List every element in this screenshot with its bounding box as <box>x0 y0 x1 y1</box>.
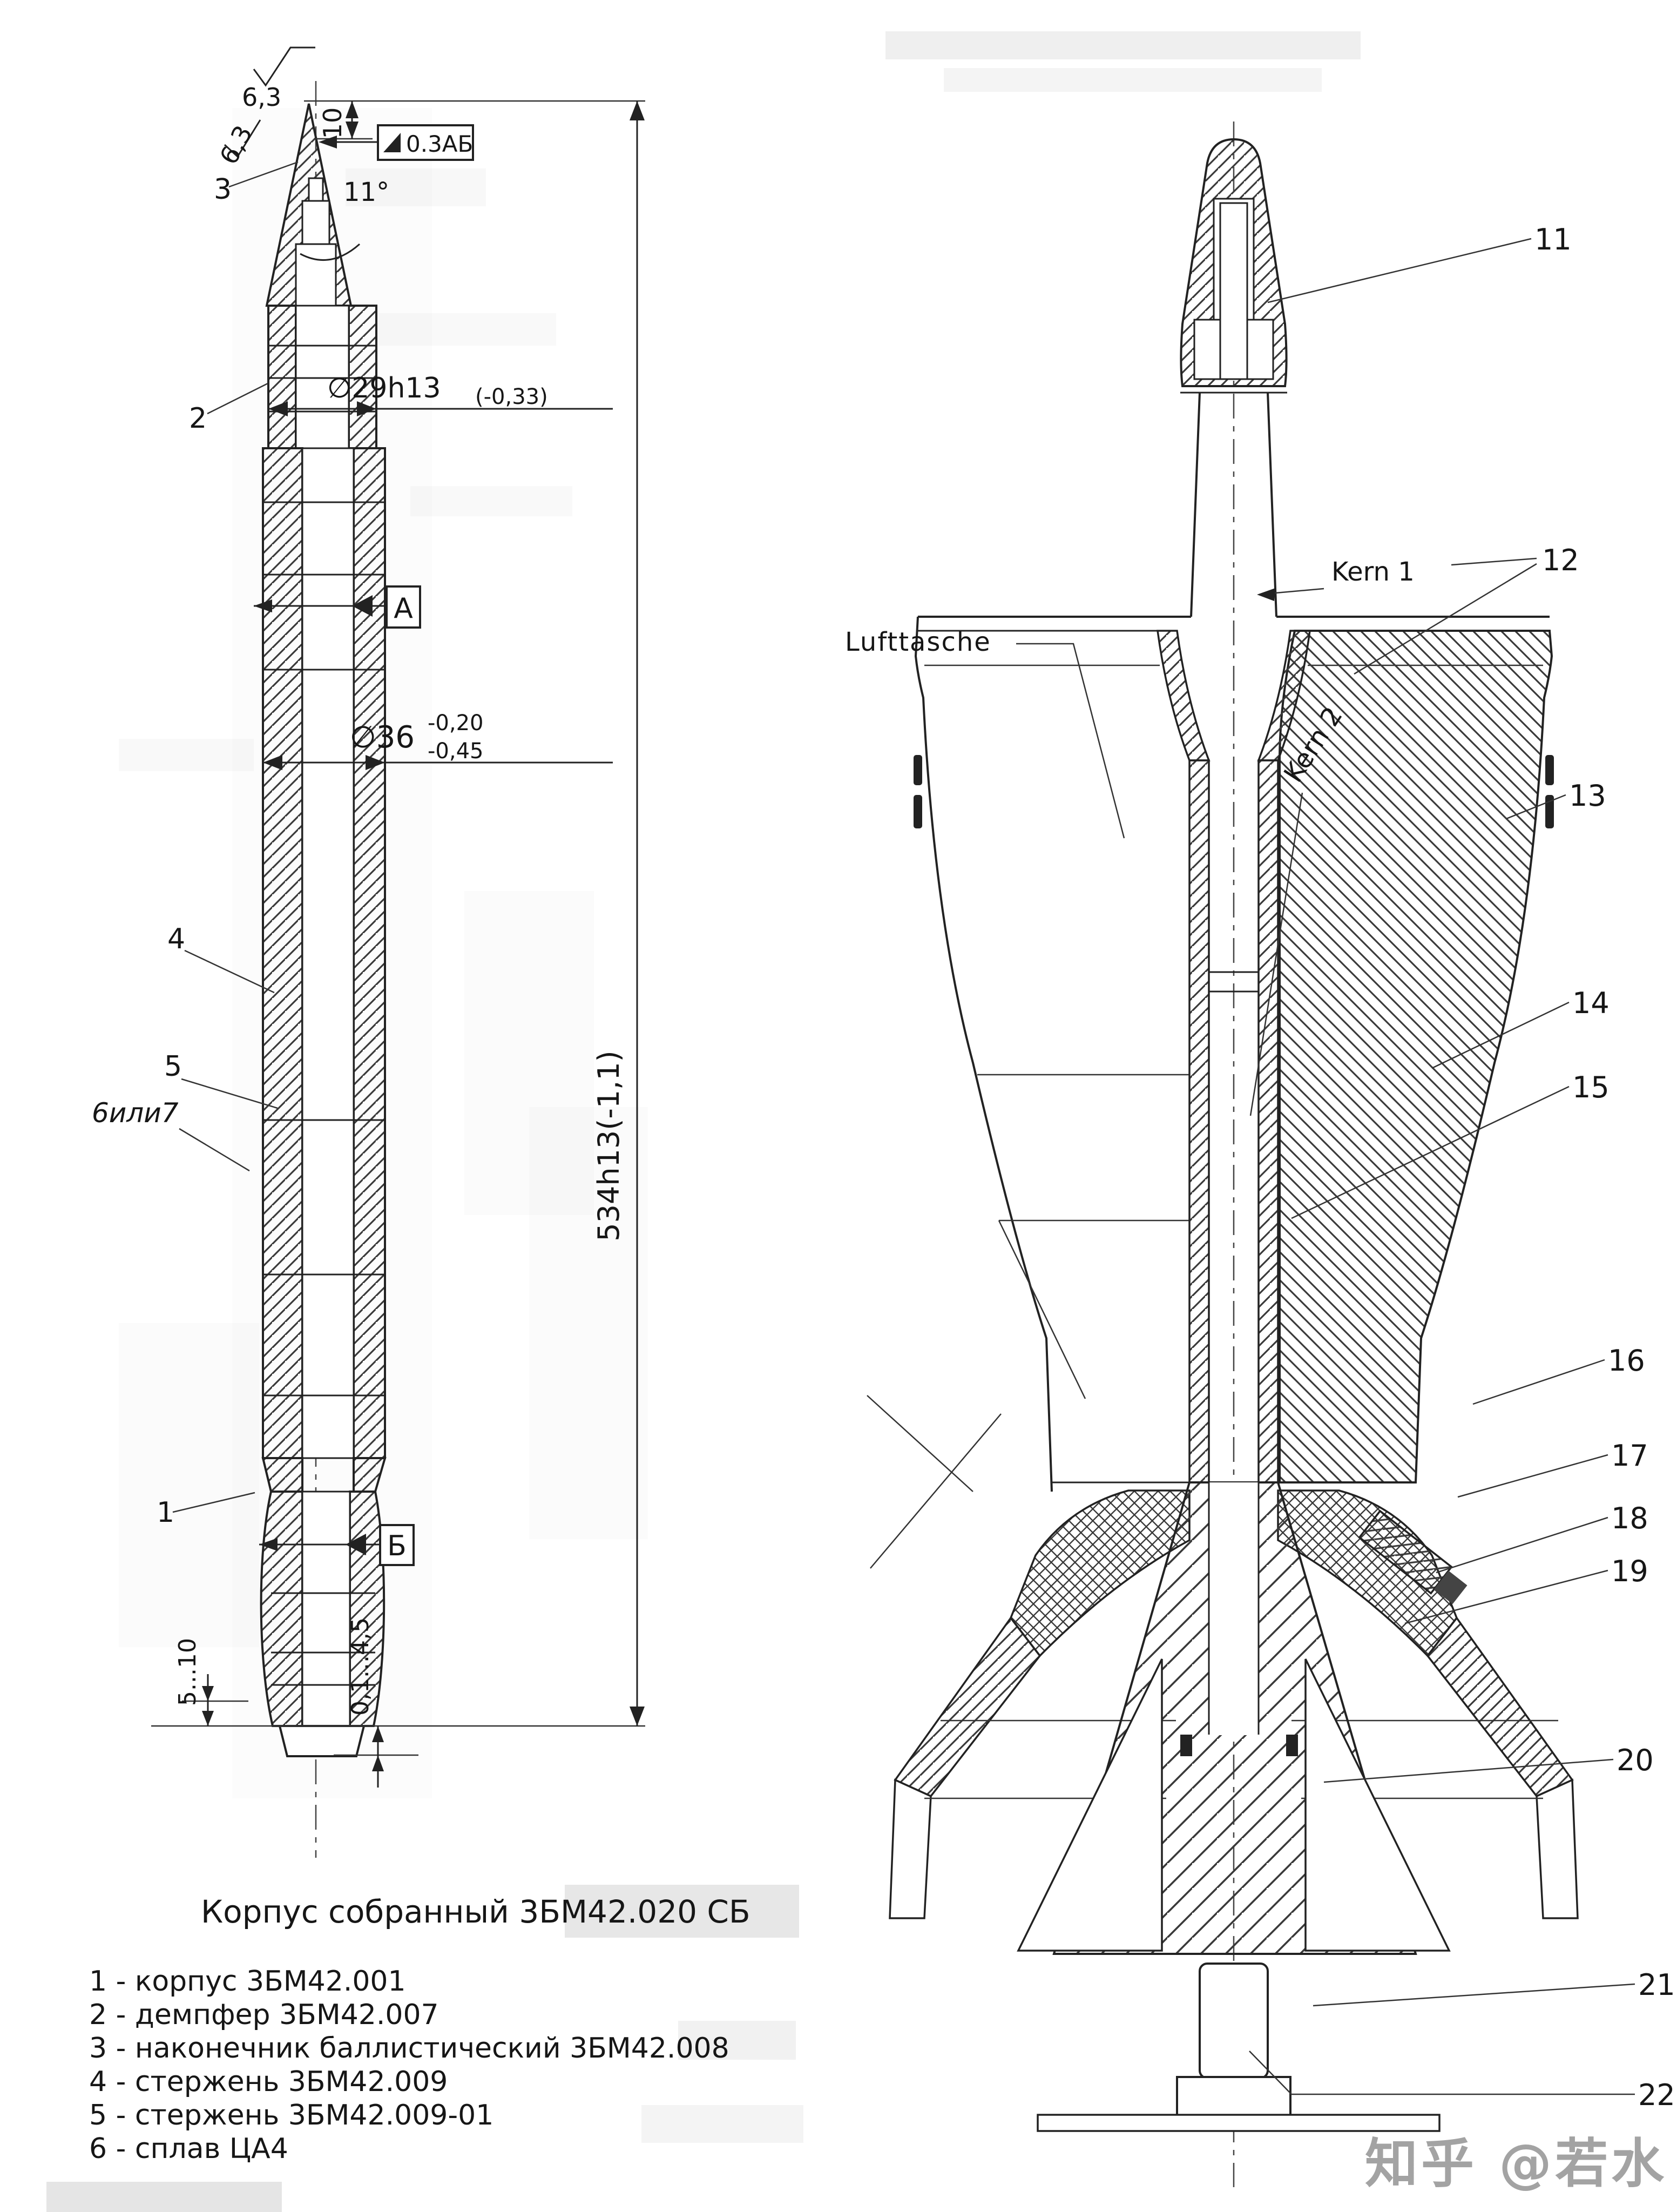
lufttasche-leader <box>1016 644 1124 838</box>
arrow <box>1257 588 1275 601</box>
gap-01-45-label: 0,1...4,5 <box>347 1617 374 1716</box>
legend-item: 2 - демпфер 3БМ42.007 <box>89 1999 439 2031</box>
len-534-label: 534h13(-1,1) <box>592 1050 626 1242</box>
roughness-top-label: 6,3 <box>242 83 281 112</box>
callout-2: 2 <box>189 402 207 435</box>
seal-band <box>914 795 922 828</box>
callout-19: 19 <box>1611 1554 1648 1588</box>
callout-12: 12 <box>1542 543 1579 577</box>
taper-label: 0.3АБ <box>406 131 473 157</box>
fin-left <box>1018 1659 1162 1951</box>
dim-10-label: 10 <box>318 107 347 139</box>
callout-17: 17 <box>1611 1439 1648 1473</box>
rod-edge-left <box>1191 393 1200 617</box>
legend-item: 4 - стержень 3БМ42.009 <box>89 2066 448 2098</box>
damper-wall-left <box>268 306 296 448</box>
tube-wall-right <box>1259 760 1278 1482</box>
skirt-petal-right <box>1428 1618 1572 1796</box>
left-fork-leader <box>870 1414 1001 1568</box>
tail-core <box>302 1492 350 1726</box>
tube-funnel-left <box>1158 631 1209 760</box>
d29-label: ∅29h13 <box>327 372 441 404</box>
tail-wall-left <box>261 1492 302 1726</box>
callout-3: 3 <box>214 173 232 206</box>
base-plate <box>1038 2115 1439 2131</box>
roughness-symbol <box>254 48 315 85</box>
nose-bore-step2 <box>302 201 329 244</box>
leader-11 <box>1268 239 1531 302</box>
callout-1: 1 <box>157 1496 174 1529</box>
callout-13: 13 <box>1569 779 1606 813</box>
arrow <box>630 101 645 120</box>
d29-tolerance: (-0,33) <box>475 385 548 409</box>
leader-22 <box>1249 2051 1635 2094</box>
sabot-left-outer-wall <box>916 617 1052 1492</box>
legend-item: 3 - наконечник баллистический 3БМ42.008 <box>89 2032 729 2065</box>
neck-left <box>263 1458 302 1492</box>
left-fork-leader <box>867 1395 973 1492</box>
figure-caption: Корпус собранный 3БМ42.020 СБ <box>201 1893 750 1930</box>
callout-4: 4 <box>167 923 185 955</box>
legend-item: 5 - стержень 3БМ42.009-01 <box>89 2099 493 2132</box>
skirt-petal-left <box>895 1618 1040 1796</box>
callout-22: 22 <box>1638 2078 1675 2112</box>
gap-5-10-label: 5...10 <box>174 1638 201 1706</box>
callout-6or7: 6или7 <box>92 1097 179 1129</box>
datum-b-label: Б <box>387 1530 407 1562</box>
arrow <box>630 1707 645 1726</box>
lock-wedge-right <box>1286 1735 1298 1756</box>
callout-20: 20 <box>1617 1743 1654 1777</box>
leader-12a <box>1451 558 1537 565</box>
leader-16 <box>1473 1360 1605 1404</box>
skirt-tip-left <box>890 1780 931 1918</box>
lock-wedge-left <box>1180 1735 1192 1756</box>
callout-14: 14 <box>1572 986 1610 1020</box>
body-wall-left <box>263 448 302 1458</box>
lufttasche-label: Lufttasche <box>845 627 991 657</box>
legend-item: 1 - корпус 3БМ42.001 <box>89 1965 406 1998</box>
angle-label: 11° <box>343 177 389 207</box>
boom-core-gap <box>1209 1482 1259 1735</box>
right-diagram-german-section: Lufttasche Kern 1 Kern 2 11 12 13 14 15 … <box>845 122 1675 2187</box>
skirt-tip-right <box>1537 1780 1578 1918</box>
scanned-technical-page: 10 6,3 6,3 11° 0.3АБ ∅29h13 (-0,33) А ∅3… <box>0 0 1677 2212</box>
leader-18 <box>1436 1518 1608 1573</box>
d36-tol-upper: -0,20 <box>428 711 484 736</box>
callout-5: 5 <box>164 1050 182 1083</box>
leader-17 <box>1458 1455 1608 1497</box>
seal-band <box>1545 755 1554 785</box>
callout-16: 16 <box>1608 1344 1645 1378</box>
tail-end-piece <box>280 1726 364 1756</box>
leader-21 <box>1313 1984 1635 2006</box>
callout-15: 15 <box>1572 1070 1610 1104</box>
arrow <box>202 1711 214 1726</box>
drawing-canvas: 10 6,3 6,3 11° 0.3АБ ∅29h13 (-0,33) А ∅3… <box>0 0 1677 2212</box>
tracer-cup <box>1200 1964 1268 2078</box>
parts-legend: 1 - корпус 3БМ42.001 2 - демпфер 3БМ42.0… <box>89 1965 729 2165</box>
tube-wall-left <box>1189 760 1209 1482</box>
seal-band <box>914 755 922 785</box>
penetrator-tip <box>1220 203 1247 379</box>
d36-tol-lower: -0,45 <box>428 739 484 764</box>
d36-label: ∅36 <box>350 720 415 755</box>
callout-21: 21 <box>1638 1968 1675 2002</box>
tracer-base <box>1177 2077 1290 2117</box>
watermark: 知乎 @若水 <box>1365 2133 1667 2195</box>
legend-item: 6 - сплав ЦА4 <box>89 2133 288 2165</box>
arrow <box>202 1686 214 1701</box>
rod-edge-right <box>1268 393 1276 617</box>
callout-18: 18 <box>1611 1501 1648 1535</box>
callout-11: 11 <box>1534 222 1572 257</box>
kern1-label: Kern 1 <box>1331 557 1415 587</box>
fin-right <box>1306 1659 1449 1951</box>
pocket-slope-line <box>999 1220 1085 1399</box>
nose-bore-step1 <box>296 244 336 306</box>
nose-bore-step3 <box>309 178 323 201</box>
body-core-rod <box>302 448 354 1458</box>
datum-a-label: А <box>394 592 413 625</box>
